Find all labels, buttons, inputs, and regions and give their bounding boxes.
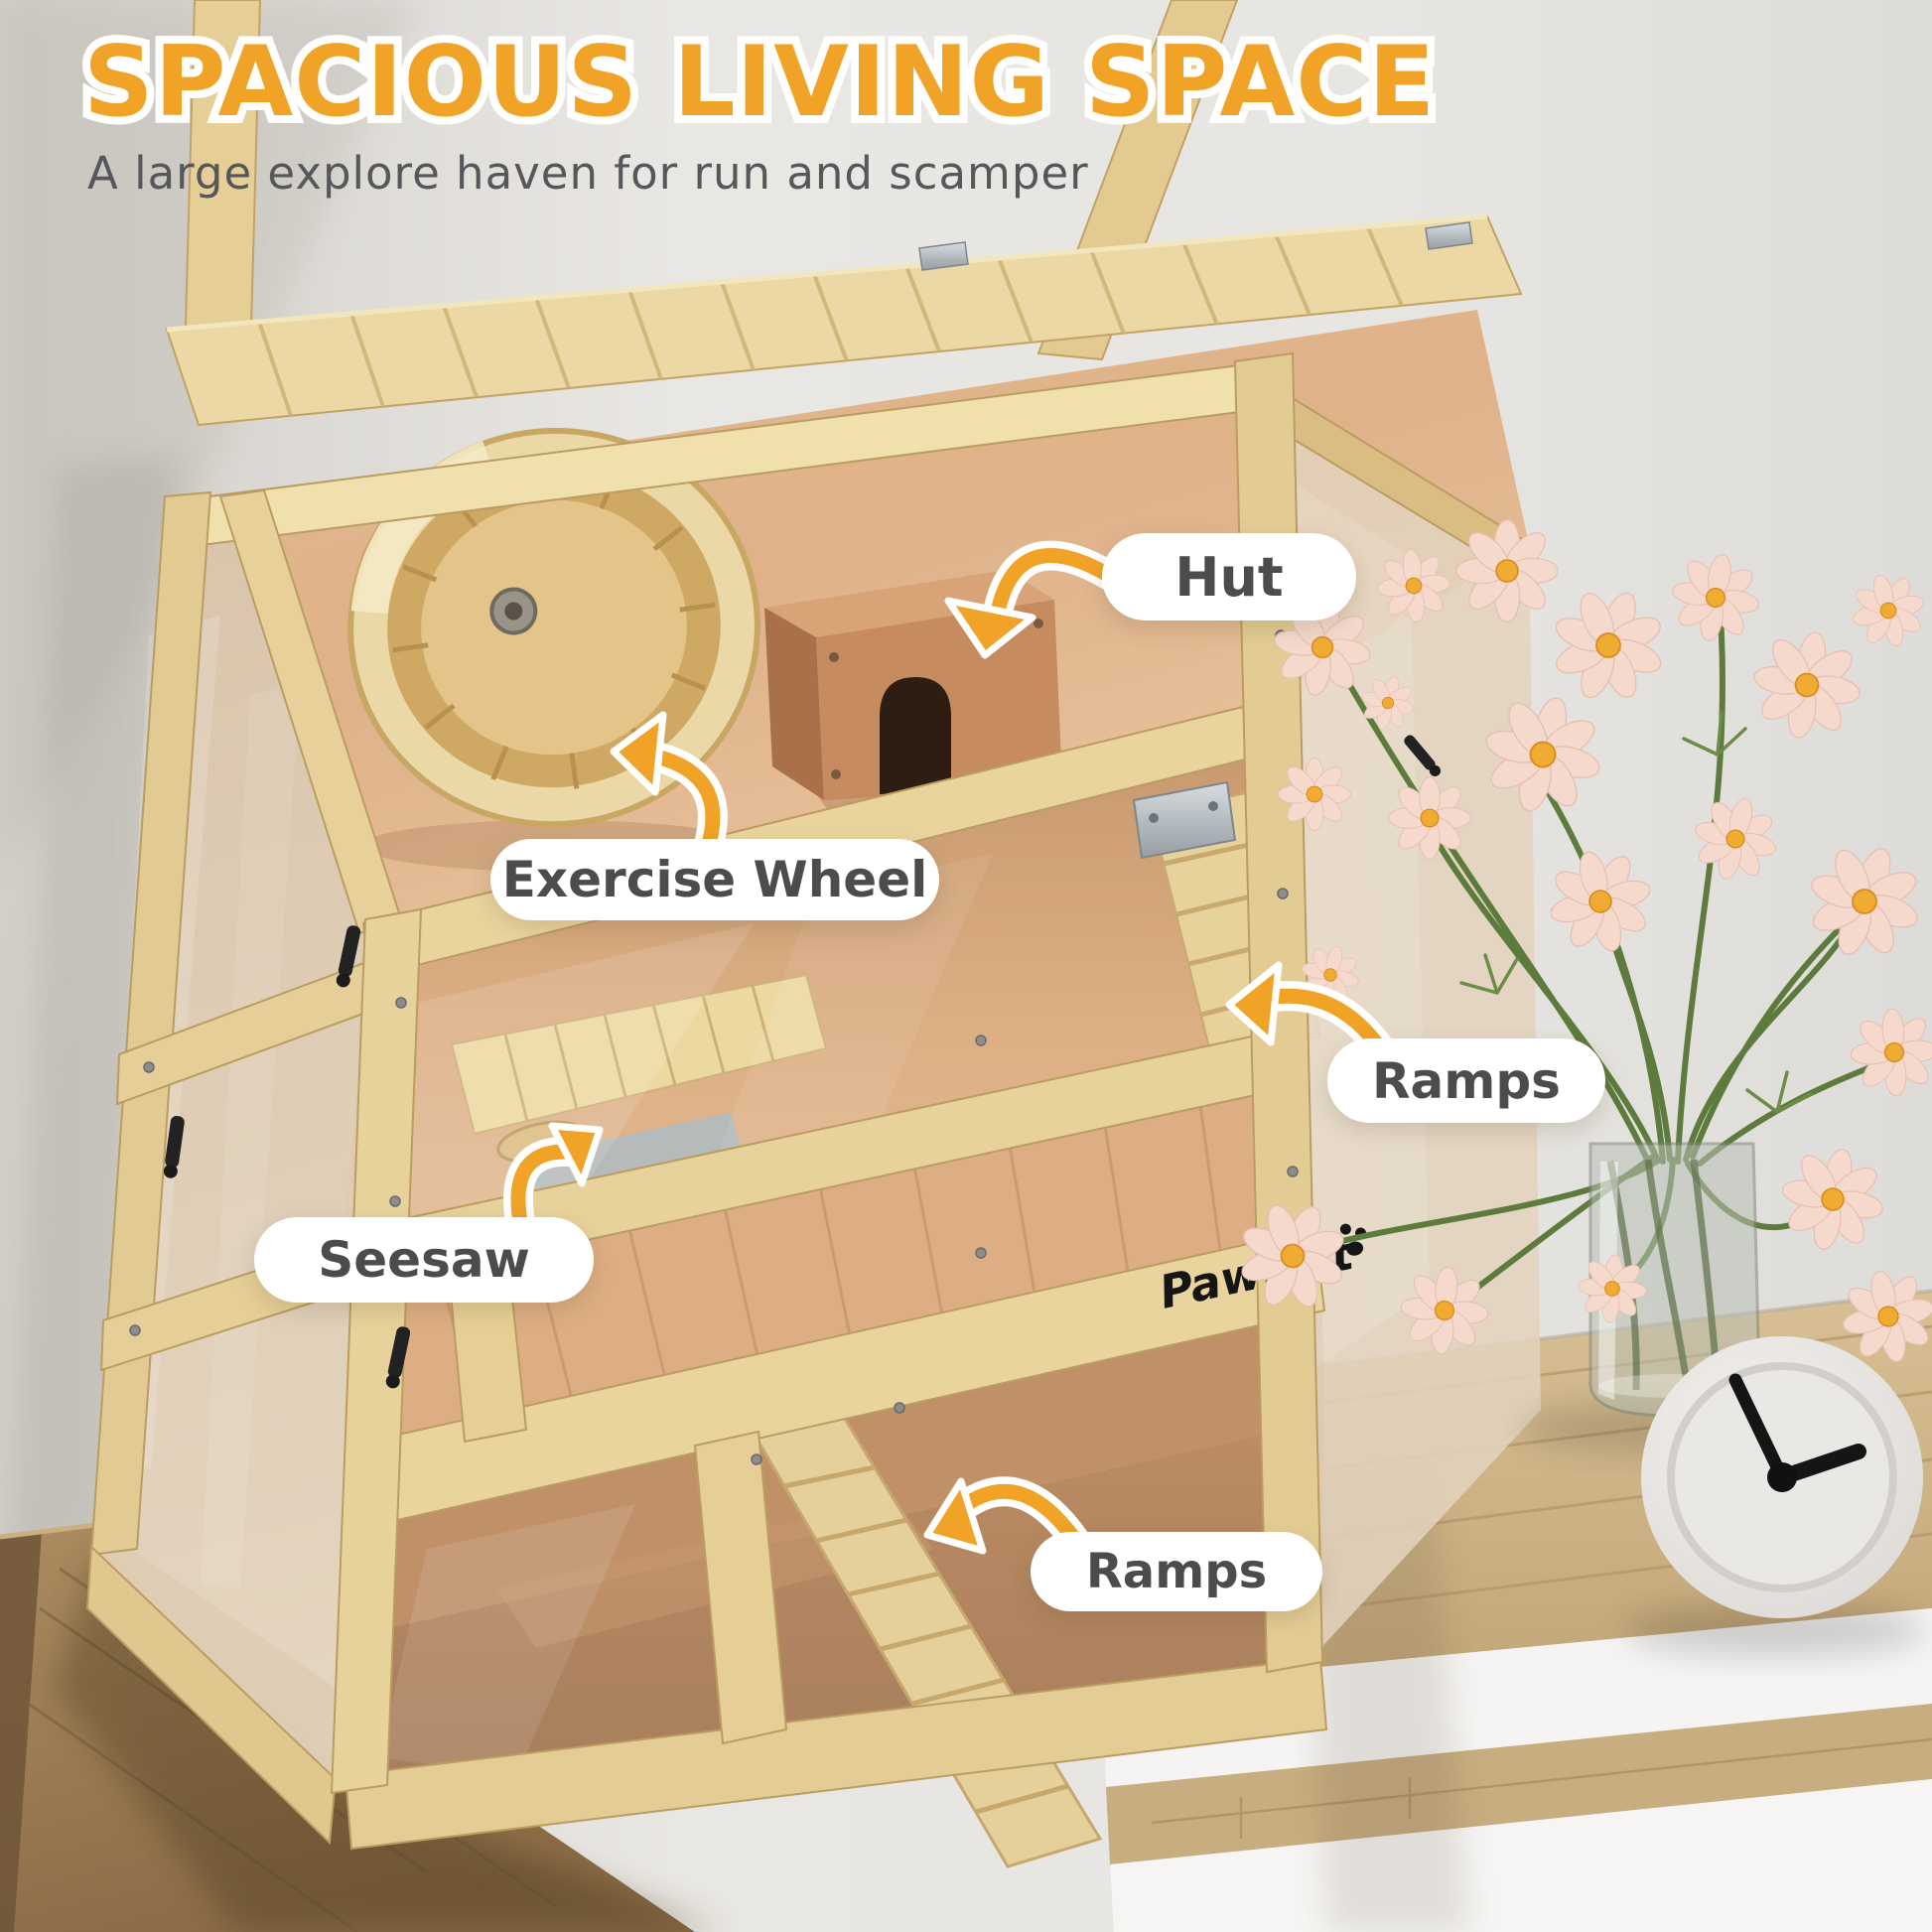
headline: SPACIOUS LIVING SPACE SPACIOUS LIVING SP… <box>83 34 1436 131</box>
page-subtitle: A large explore haven for run and scampe… <box>87 147 1089 200</box>
callout-label: Seesaw <box>318 1231 530 1289</box>
callout-pill-hut: Hut <box>1102 533 1356 621</box>
page-title: SPACIOUS LIVING SPACE <box>83 26 1436 139</box>
scene-illustration: PawHut <box>0 0 1932 1932</box>
callout-label: Exercise Wheel <box>502 851 928 908</box>
callout-label: Hut <box>1174 546 1283 609</box>
infographic-canvas: PawHut <box>0 0 1932 1932</box>
callout-pill-seesaw: Seesaw <box>254 1217 594 1303</box>
callout-pill-ramps-upper: Ramps <box>1327 1038 1605 1123</box>
callout-label: Ramps <box>1086 1544 1267 1599</box>
callout-label: Ramps <box>1372 1052 1561 1110</box>
callout-pill-exercise-wheel: Exercise Wheel <box>490 839 939 920</box>
callout-pill-ramps-lower: Ramps <box>1031 1532 1322 1611</box>
